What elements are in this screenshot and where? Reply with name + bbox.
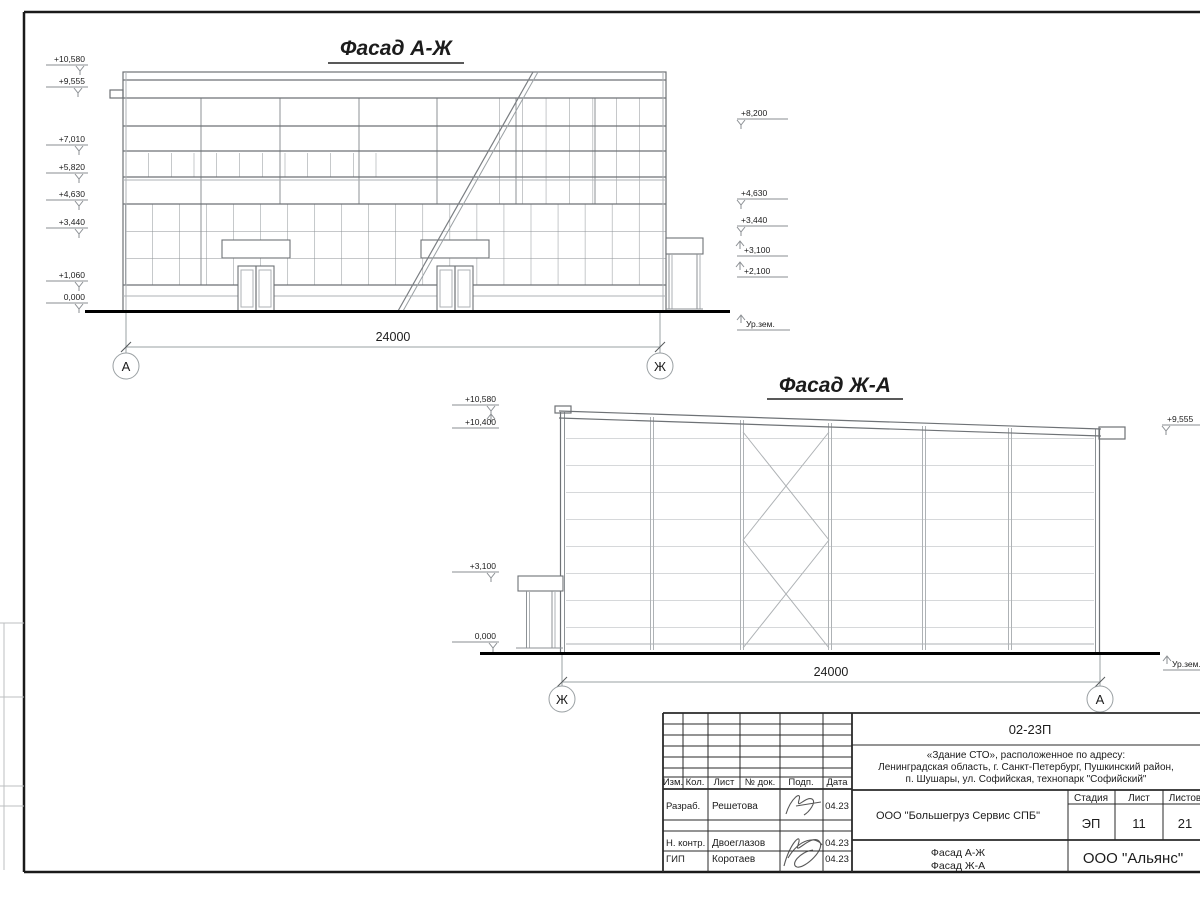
svg-text:+3,440: +3,440 <box>741 215 768 225</box>
svg-text:«Здание СТО», расположенное по: «Здание СТО», расположенное по адресу: <box>927 750 1125 761</box>
row-date: 04.23 <box>825 838 849 849</box>
svg-text:Фасад А-Ж: Фасад А-Ж <box>931 847 985 859</box>
sheets-label: Листов <box>1169 793 1200 804</box>
row-date: 04.23 <box>825 801 849 812</box>
svg-text:+5,820: +5,820 <box>59 162 86 172</box>
row-role: Разраб. <box>666 801 700 812</box>
col-podp: Подп. <box>788 777 813 788</box>
col-list: Лист <box>714 777 735 788</box>
svg-text:0,000: 0,000 <box>64 292 86 302</box>
svg-text:Ур.зем.: Ур.зем. <box>746 319 775 329</box>
sheet-title: Фасад А-Ж Фасад Ж-А <box>931 847 985 872</box>
svg-text:+1,060: +1,060 <box>59 270 86 280</box>
svg-text:п. Шушары, ул. Софийская, техн: п. Шушары, ул. Софийская, технопарк "Соф… <box>906 773 1147 785</box>
facade1-title: Фасад А-Ж <box>340 37 453 60</box>
col-data: Дата <box>826 777 848 788</box>
svg-text:+4,630: +4,630 <box>59 189 86 199</box>
sheet-value: 11 <box>1132 816 1146 831</box>
svg-text:0,000: 0,000 <box>475 631 497 641</box>
svg-text:+3,100: +3,100 <box>470 561 497 571</box>
row-role: ГИП <box>666 854 685 865</box>
stage-value: ЭП <box>1082 816 1101 831</box>
row-name: Решетова <box>712 801 758 812</box>
svg-text:+9,555: +9,555 <box>59 76 86 86</box>
sheet-label: Лист <box>1128 793 1150 804</box>
axis-label-left: А <box>122 359 131 374</box>
svg-text:Ур.зем.: Ур.зем. <box>1172 659 1200 669</box>
sheets-value: 21 <box>1178 816 1192 831</box>
svg-text:+3,100: +3,100 <box>744 245 771 255</box>
svg-text:+2,100: +2,100 <box>744 266 771 276</box>
col-ndok: № док. <box>745 777 775 788</box>
client-name: ООО "Большегруз Сервис СПБ" <box>876 810 1040 822</box>
facade2-title: Фасад Ж-А <box>779 374 891 397</box>
col-kol: Кол. <box>686 777 705 788</box>
row-name: Двоеглазов <box>712 838 765 849</box>
doc-number: 02-23П <box>1009 722 1052 737</box>
dimension-label: 24000 <box>814 665 849 679</box>
axis-label-left: Ж <box>556 692 568 707</box>
svg-text:+9,555: +9,555 <box>1167 414 1194 424</box>
row-name: Коротаев <box>712 854 755 865</box>
svg-text:Ленинградская область, г. Санк: Ленинградская область, г. Санкт-Петербур… <box>878 761 1174 773</box>
stage-label: Стадия <box>1074 793 1108 804</box>
svg-text:+10,580: +10,580 <box>465 394 496 404</box>
col-izm: Изм. <box>663 777 683 788</box>
row-date: 04.23 <box>825 854 849 865</box>
svg-text:+8,200: +8,200 <box>741 108 768 118</box>
axis-label-right: Ж <box>654 359 666 374</box>
svg-text:+4,630: +4,630 <box>741 188 768 198</box>
svg-text:+10,400: +10,400 <box>465 417 496 427</box>
svg-text:+7,010: +7,010 <box>59 134 86 144</box>
svg-text:Фасад Ж-А: Фасад Ж-А <box>931 860 985 872</box>
org-name: ООО "Альянс" <box>1083 850 1183 867</box>
dimension-label: 24000 <box>376 330 411 344</box>
facade2-drawing <box>480 406 1160 654</box>
svg-text:+10,580: +10,580 <box>54 54 85 64</box>
row-role: Н. контр. <box>666 838 705 849</box>
axis-label-right: А <box>1096 692 1105 707</box>
svg-text:+3,440: +3,440 <box>59 217 86 227</box>
drawing-sheet: Фасад А-Ж <box>0 0 1200 900</box>
